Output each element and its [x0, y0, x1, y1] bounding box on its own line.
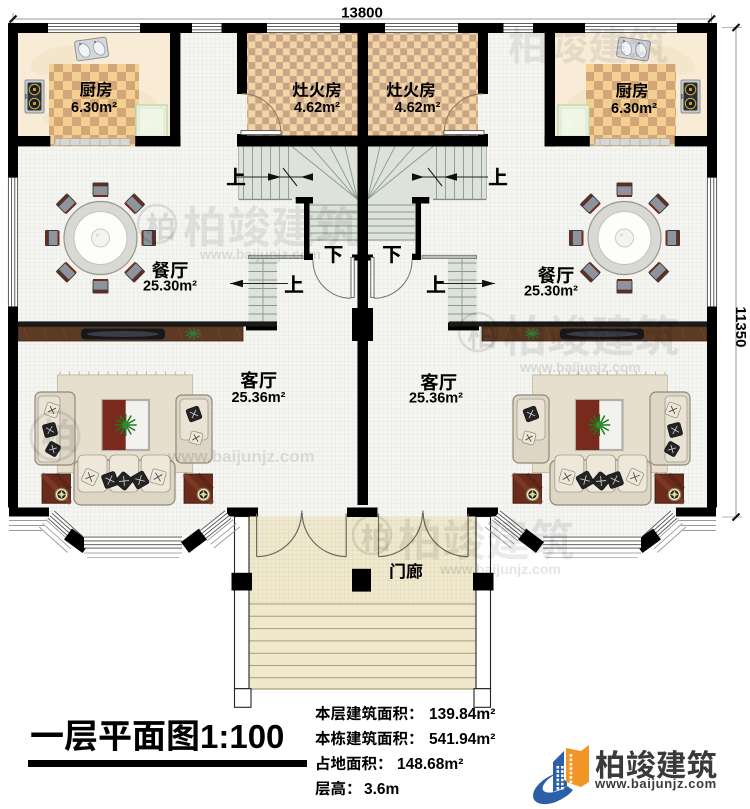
svg-text:4.62m²: 4.62m² [294, 100, 340, 116]
svg-text:3.6m: 3.6m [364, 781, 399, 798]
svg-text:541.94m²: 541.94m² [429, 731, 495, 748]
svg-text:www.baijunjz.com: www.baijunjz.com [594, 776, 717, 791]
svg-text:148.68m²: 148.68m² [397, 756, 463, 773]
svg-text:www.baijunjz.com: www.baijunjz.com [199, 246, 321, 262]
svg-text:1:100: 1:100 [200, 718, 284, 755]
svg-text:www.baijunjz.com: www.baijunjz.com [439, 561, 561, 577]
svg-text:13800: 13800 [341, 5, 383, 22]
svg-text:25.30m²: 25.30m² [524, 284, 578, 300]
svg-text:25.36m²: 25.36m² [231, 390, 285, 406]
svg-text:11350: 11350 [732, 307, 749, 348]
svg-text:25.30m²: 25.30m² [143, 279, 197, 295]
svg-text:6.30m²: 6.30m² [71, 100, 117, 116]
svg-text:139.84m²: 139.84m² [429, 706, 495, 723]
svg-text:www.baijunjz.com: www.baijunjz.com [167, 447, 315, 466]
svg-text:6.30m²: 6.30m² [611, 101, 657, 117]
svg-text:25.36m²: 25.36m² [409, 391, 463, 407]
svg-text:www.baijunjz.com: www.baijunjz.com [519, 359, 641, 375]
svg-text:4.62m²: 4.62m² [395, 100, 441, 116]
